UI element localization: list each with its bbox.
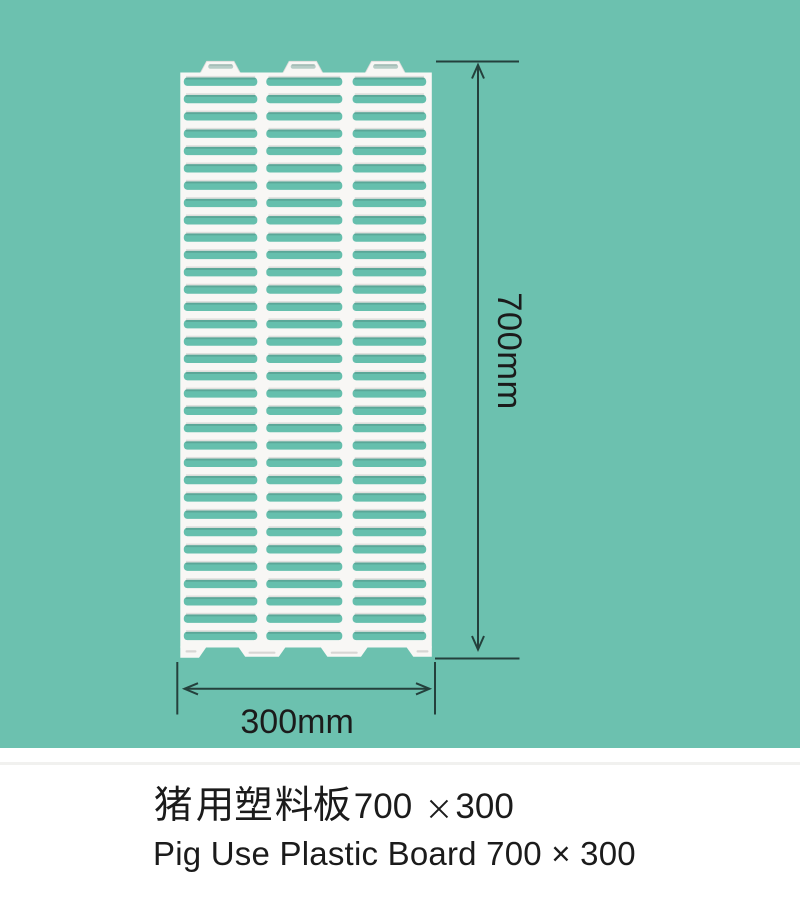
svg-text:Pig Use Plastic Board 700 × 30: Pig Use Plastic Board 700 × 300 xyxy=(153,835,636,872)
svg-text:300: 300 xyxy=(455,787,513,826)
svg-text:300mm: 300mm xyxy=(240,703,353,741)
svg-text:700: 700 xyxy=(354,787,412,826)
svg-text:700mm: 700mm xyxy=(490,292,528,410)
